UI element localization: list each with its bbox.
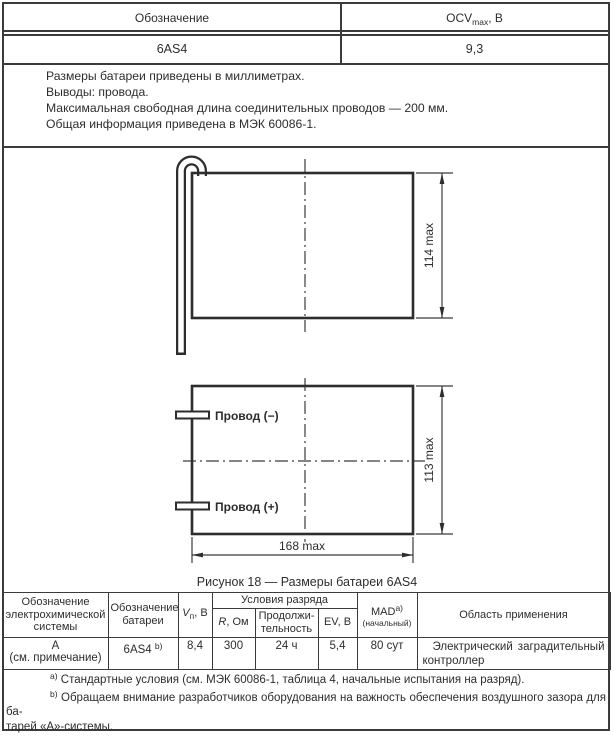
arrowhead-up xyxy=(440,386,445,397)
footnote-b-line1: b) Обращаем внимание разработчиков обору… xyxy=(6,687,606,719)
figure-caption: Рисунок 18 — Размеры батареи 6AS4 xyxy=(197,575,417,589)
spec-cell-voltage: 8,4 xyxy=(178,637,212,669)
application-text: Электрический заградительный контроллер xyxy=(420,640,608,668)
table-line xyxy=(3,34,609,36)
spec-header-duration: Продолжи- тельность xyxy=(255,608,318,637)
footnote-a: a) Стандартные условия (см. МЭК 60086-1,… xyxy=(6,669,606,687)
battery-designation-value: 6AS4 xyxy=(4,42,340,56)
r-suffix: , Ом xyxy=(226,616,248,628)
mad-initial-label: (начальный) xyxy=(360,618,415,628)
spec-header-resistance: R, Ом xyxy=(212,608,255,637)
spec-table: Обозначение электрохимической системы Об… xyxy=(3,592,611,670)
page-border-top xyxy=(2,2,610,4)
arrowhead-down xyxy=(440,307,445,318)
footnote-b-marker: b) xyxy=(50,689,58,699)
table-line xyxy=(3,30,609,32)
note-line: Выводы: провода. xyxy=(46,84,586,100)
spec-cell-system: А (см. примечание) xyxy=(3,637,108,669)
footnote-b-line2: тарей «А»-системы. xyxy=(6,720,606,734)
battery-code: 6AS4 xyxy=(124,644,155,656)
battery-footnote-marker: b) xyxy=(155,641,163,651)
battery-dimensions-drawing: 114 max Провод (−) Провод (+) 113 max 16… xyxy=(4,146,608,592)
ocv-subscript: max xyxy=(472,17,488,27)
spec-cell-duration: 24 ч xyxy=(255,637,318,669)
note-line: Общая информация приведена в МЭК 60086-1… xyxy=(46,116,586,132)
spec-cell-mad: 80 сут xyxy=(357,637,417,669)
table-line xyxy=(3,63,609,65)
footnote-b-text: Обращаем внимание разработчиков оборудов… xyxy=(6,692,606,718)
footnote-a-text: Стандартные условия (см. МЭК 60086-1, та… xyxy=(58,674,525,686)
battery-body-side-view xyxy=(192,173,413,318)
mad-superscript: a) xyxy=(395,603,403,613)
spec-cell-battery: 6AS4 b) xyxy=(108,637,178,669)
arrowhead-right xyxy=(402,553,413,558)
terminal-negative xyxy=(176,412,209,419)
v-suffix: , В xyxy=(194,607,207,619)
v-symbol: V xyxy=(182,607,189,619)
spec-header-battery: Обозначение батареи xyxy=(108,593,178,638)
lead-negative-label: Провод (−) xyxy=(215,409,279,423)
spec-header-discharge-conditions: Условия разряда xyxy=(212,593,357,609)
spec-header-system: Обозначение электрохимической системы xyxy=(3,593,108,638)
footnote-a-marker: a) xyxy=(50,671,58,681)
dimension-label-113: 113 max xyxy=(422,437,436,482)
ocv-main: OCV xyxy=(446,11,472,25)
document-page: Обозначение OCVmax, В 6AS4 9,3 Размеры б… xyxy=(0,0,614,736)
spec-header-ev: EV, В xyxy=(318,608,357,637)
lead-positive-label: Провод (+) xyxy=(215,500,279,514)
terminal-positive xyxy=(176,503,209,510)
spec-cell-application: Электрический заградительный контроллер xyxy=(417,637,610,669)
notes-block: Размеры батареи приведены в миллиметрах.… xyxy=(46,68,586,132)
dimension-label-168: 168 max xyxy=(279,539,325,553)
spec-header-voltage: Vп, В xyxy=(178,593,212,638)
dimension-label-114: 114 max xyxy=(422,223,436,268)
spec-header-mad: MADa)(начальный) xyxy=(357,593,417,638)
note-line: Размеры батареи приведены в миллиметрах. xyxy=(46,68,586,84)
footnotes-block: a) Стандартные условия (см. МЭК 60086-1,… xyxy=(6,669,606,736)
spec-header-application: Область применения xyxy=(417,593,610,638)
note-line: Максимальная свободная длина соединитель… xyxy=(46,100,586,116)
mad-main: MAD xyxy=(371,606,395,618)
ocv-value: 9,3 xyxy=(341,42,608,56)
top-table-header-designation: Обозначение xyxy=(4,11,340,25)
arrowhead-left xyxy=(192,553,203,558)
ocv-suffix: , В xyxy=(488,11,503,25)
arrowhead-up xyxy=(440,173,445,184)
top-table-header-ocv: OCVmax, В xyxy=(341,11,608,27)
arrowhead-down xyxy=(440,523,445,534)
spec-cell-resistance: 300 xyxy=(212,637,255,669)
spec-cell-ev: 5,4 xyxy=(318,637,357,669)
